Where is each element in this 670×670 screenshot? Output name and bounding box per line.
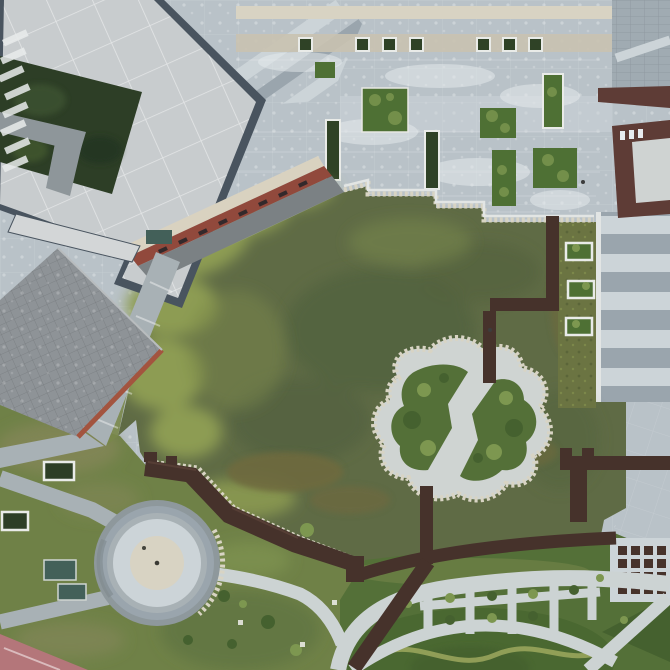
- planter-narrow: [326, 120, 340, 180]
- boardwalk-crenel: [144, 452, 157, 462]
- person-dot: [142, 546, 146, 550]
- wall-tab: [582, 448, 594, 456]
- circle-center-drain: [155, 561, 160, 566]
- aerial-photo: [0, 0, 670, 670]
- skylight-frame: [2, 512, 28, 530]
- green-shed-roof: [44, 560, 76, 580]
- planter-tree: [480, 108, 516, 138]
- island-entry-walk: [483, 311, 496, 383]
- walkway-curb: [596, 212, 601, 408]
- walkway-planters: [566, 243, 594, 335]
- teal-shed-roof: [146, 230, 172, 244]
- planter-large: [362, 88, 408, 132]
- boardwalk-crenel: [166, 456, 177, 465]
- planter-tall: [543, 74, 563, 128]
- edge-planter: [568, 281, 594, 298]
- north-wall-jog: [490, 298, 559, 311]
- east-walkway: [596, 212, 670, 408]
- skylight-frame: [44, 462, 74, 480]
- east-roof-panel: [632, 138, 670, 203]
- cream-band: [236, 6, 612, 19]
- planter-narrow: [425, 131, 439, 189]
- planter-small: [315, 62, 335, 78]
- east-wall-horizontal: [560, 456, 670, 470]
- east-wall-vertical: [570, 470, 587, 522]
- person-dot: [581, 180, 585, 184]
- pond-plant-tuft: [300, 523, 314, 537]
- person-dot: [488, 328, 492, 332]
- planter-large: [533, 148, 577, 188]
- planter-tall: [492, 150, 516, 206]
- green-shed-roof: [58, 584, 86, 600]
- wall-tab: [560, 448, 572, 456]
- north-wall-vertical: [546, 216, 559, 304]
- checker-grove: [610, 538, 670, 602]
